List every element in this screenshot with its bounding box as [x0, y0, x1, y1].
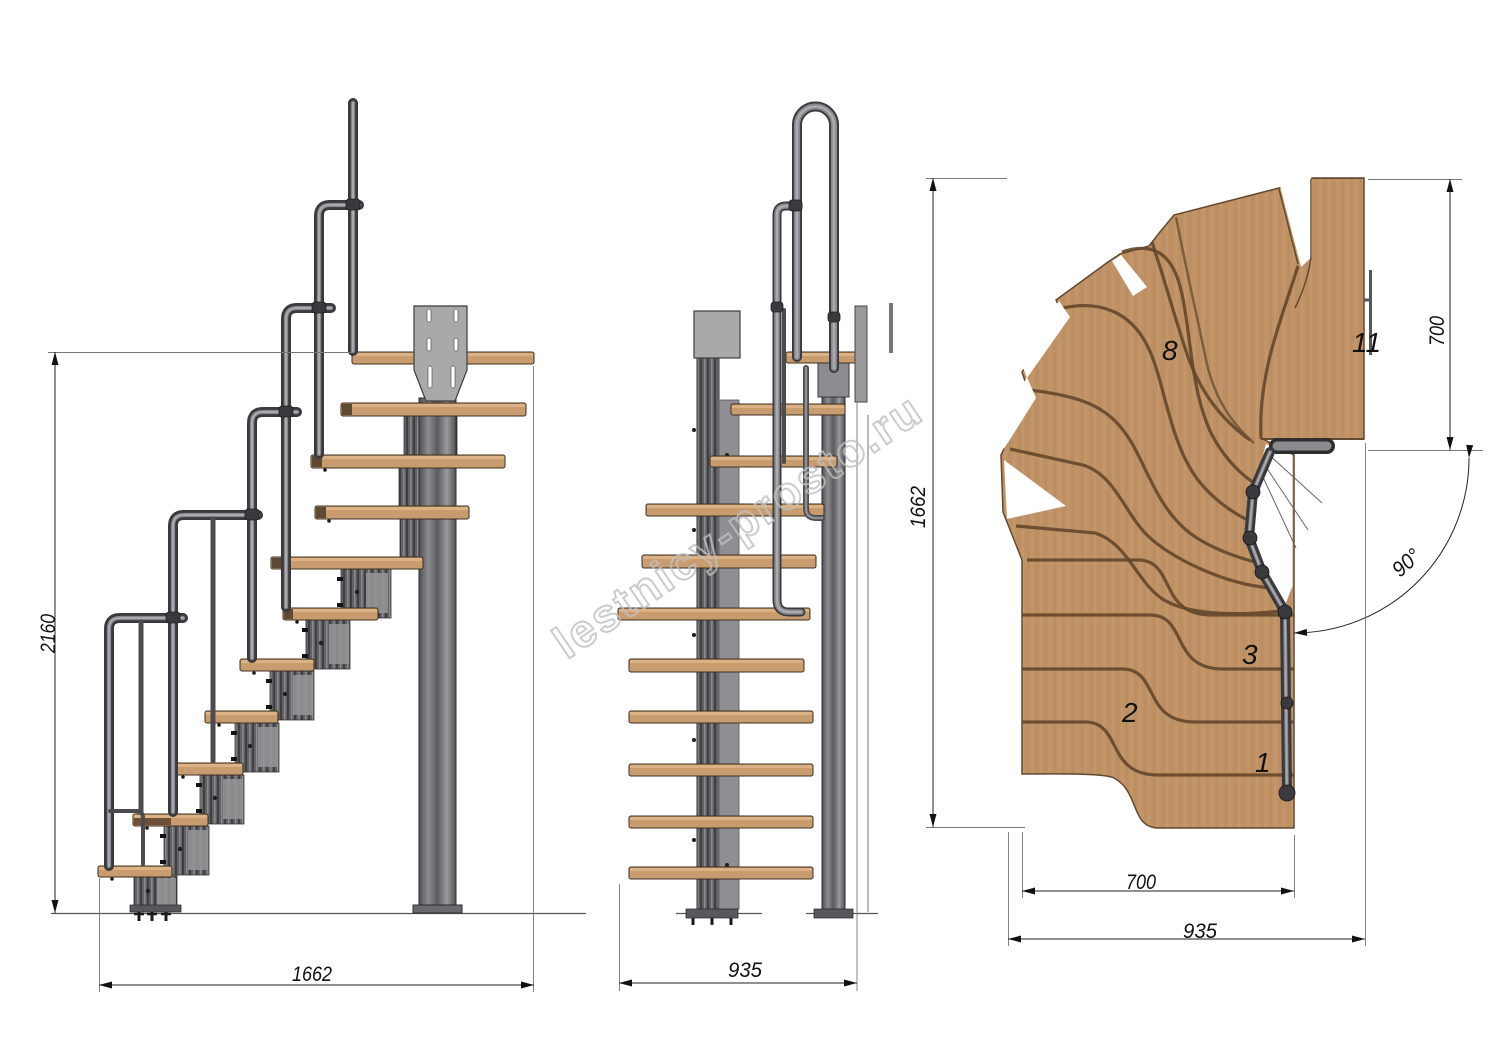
svg-text:935: 935 [1183, 919, 1218, 943]
svg-text:2: 2 [1121, 697, 1138, 728]
svg-text:11: 11 [1352, 327, 1381, 358]
svg-text:1662: 1662 [292, 962, 332, 986]
svg-text:2160: 2160 [36, 614, 60, 654]
svg-text:700: 700 [1126, 870, 1156, 894]
svg-text:1662: 1662 [906, 486, 930, 528]
svg-text:700: 700 [1425, 316, 1449, 346]
svg-text:8: 8 [1162, 335, 1178, 366]
svg-text:1: 1 [1255, 747, 1271, 778]
svg-text:935: 935 [728, 958, 763, 982]
svg-text:3: 3 [1242, 639, 1258, 670]
